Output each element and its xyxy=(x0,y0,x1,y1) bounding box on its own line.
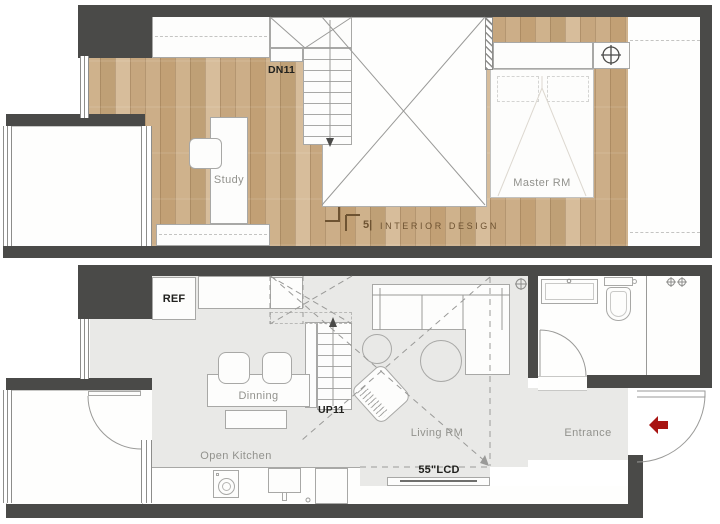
master-downlight-box xyxy=(593,42,630,69)
upper-balcony-top-wall xyxy=(6,114,145,126)
dining-chair-1 xyxy=(218,352,250,384)
bathroom-door-threshold xyxy=(538,376,587,391)
refrigerator-label: REF xyxy=(163,293,186,305)
understair-dashed-zone xyxy=(270,312,352,324)
upper-top-wall xyxy=(78,5,712,17)
upper-balcony-left-window xyxy=(3,126,12,246)
entrance-door-leaf xyxy=(637,391,705,397)
kitchen-label: Open Kitchen xyxy=(176,450,296,462)
entry-arrow-icon xyxy=(649,416,668,434)
watermark-logo-mark: 5| xyxy=(363,219,372,231)
upper-stair-direction-label: DN11 xyxy=(268,64,295,76)
lower-left-floor-band xyxy=(90,319,152,379)
entrance-floor xyxy=(528,388,628,460)
dining-bench xyxy=(225,410,287,429)
balcony-door-leaf xyxy=(88,391,141,396)
lower-stair-direction-label: UP11 xyxy=(318,404,345,416)
dining-room-label: Dinning xyxy=(207,390,310,402)
kitchen-cabinet-box xyxy=(315,468,348,504)
lower-stair-run xyxy=(317,322,352,410)
lower-balcony-top-wall xyxy=(6,378,152,390)
master-pillow-right xyxy=(547,76,589,102)
watermark-logo-text: INTERIOR DESIGN xyxy=(380,221,499,231)
toilet-bowl-icon xyxy=(606,287,631,321)
upper-hatched-wall xyxy=(485,17,493,70)
washing-machine xyxy=(213,470,239,498)
upper-left-window xyxy=(80,56,89,118)
kitchen-sink xyxy=(268,468,301,493)
sofa-chaise xyxy=(465,329,510,375)
study-chair xyxy=(189,138,222,169)
lower-top-wall xyxy=(150,265,712,276)
tv-screen-icon xyxy=(400,480,477,482)
toilet-bowl-inner xyxy=(610,291,627,317)
lower-balcony-inner-window xyxy=(141,440,152,503)
vanity-basin-icon xyxy=(545,283,594,300)
top-counter-2 xyxy=(270,277,303,309)
study-desk xyxy=(210,117,248,224)
coffee-table xyxy=(420,340,462,382)
upper-wardrobe-dash xyxy=(155,36,267,37)
master-pillow-left xyxy=(497,76,539,102)
upper-balcony-floor xyxy=(6,126,143,248)
toilet-flush-button xyxy=(632,279,637,284)
upper-topleft-wall-block xyxy=(78,5,152,58)
lower-balcony-left-window xyxy=(3,390,12,503)
study-room-label: Study xyxy=(199,174,259,186)
side-pouf xyxy=(362,334,392,364)
upper-right-wall xyxy=(700,5,712,258)
lower-bottom-white-strip xyxy=(360,486,637,505)
lower-right-wall xyxy=(700,265,712,388)
entrance-door-swing-icon xyxy=(637,394,705,462)
bathroom-bottom-wall xyxy=(587,375,712,388)
upper-stair-winder xyxy=(270,17,352,48)
kitchen-sink-tap xyxy=(282,492,287,501)
upper-right-open-area xyxy=(628,17,702,246)
lower-bottom-wall xyxy=(6,504,642,518)
bathroom-vanity xyxy=(541,279,598,304)
floor-plan-canvas: DN11 Study Master RM 5| INTERIOR DESIGN … xyxy=(0,0,720,524)
living-room-label: Living RM xyxy=(400,427,474,439)
washer-knob-icon xyxy=(216,473,219,476)
lower-balcony-door-gap xyxy=(141,390,152,440)
tv-console xyxy=(387,477,490,486)
top-counter xyxy=(198,276,272,309)
upper-right-dash-line-top xyxy=(630,40,700,41)
entrance-label: Entrance xyxy=(548,427,628,439)
refrigerator: REF xyxy=(152,277,196,320)
master-room-label: Master RM xyxy=(492,177,592,189)
bathroom-left-wall xyxy=(528,276,538,378)
toilet-tank xyxy=(604,277,633,286)
study-cabinet-dash xyxy=(159,234,267,235)
dining-chair-2 xyxy=(262,352,292,384)
washer-drum-inner-icon xyxy=(222,482,231,491)
lower-topleft-wall-block xyxy=(78,265,152,319)
master-headboard-cabinet xyxy=(493,42,593,69)
upper-right-dash-line-bottom xyxy=(630,232,700,233)
study-low-cabinet xyxy=(156,224,270,246)
upper-stair-run xyxy=(303,48,352,145)
lower-balcony-floor xyxy=(6,390,143,505)
upper-balcony-inner-window xyxy=(141,126,152,246)
lower-left-window xyxy=(80,319,89,379)
sofa-body xyxy=(372,284,510,330)
tv-size-label: 55"LCD xyxy=(408,464,470,476)
upper-stair-landing xyxy=(270,48,303,62)
shower-divider-wall xyxy=(646,276,647,376)
upper-bottom-wall xyxy=(3,246,712,258)
